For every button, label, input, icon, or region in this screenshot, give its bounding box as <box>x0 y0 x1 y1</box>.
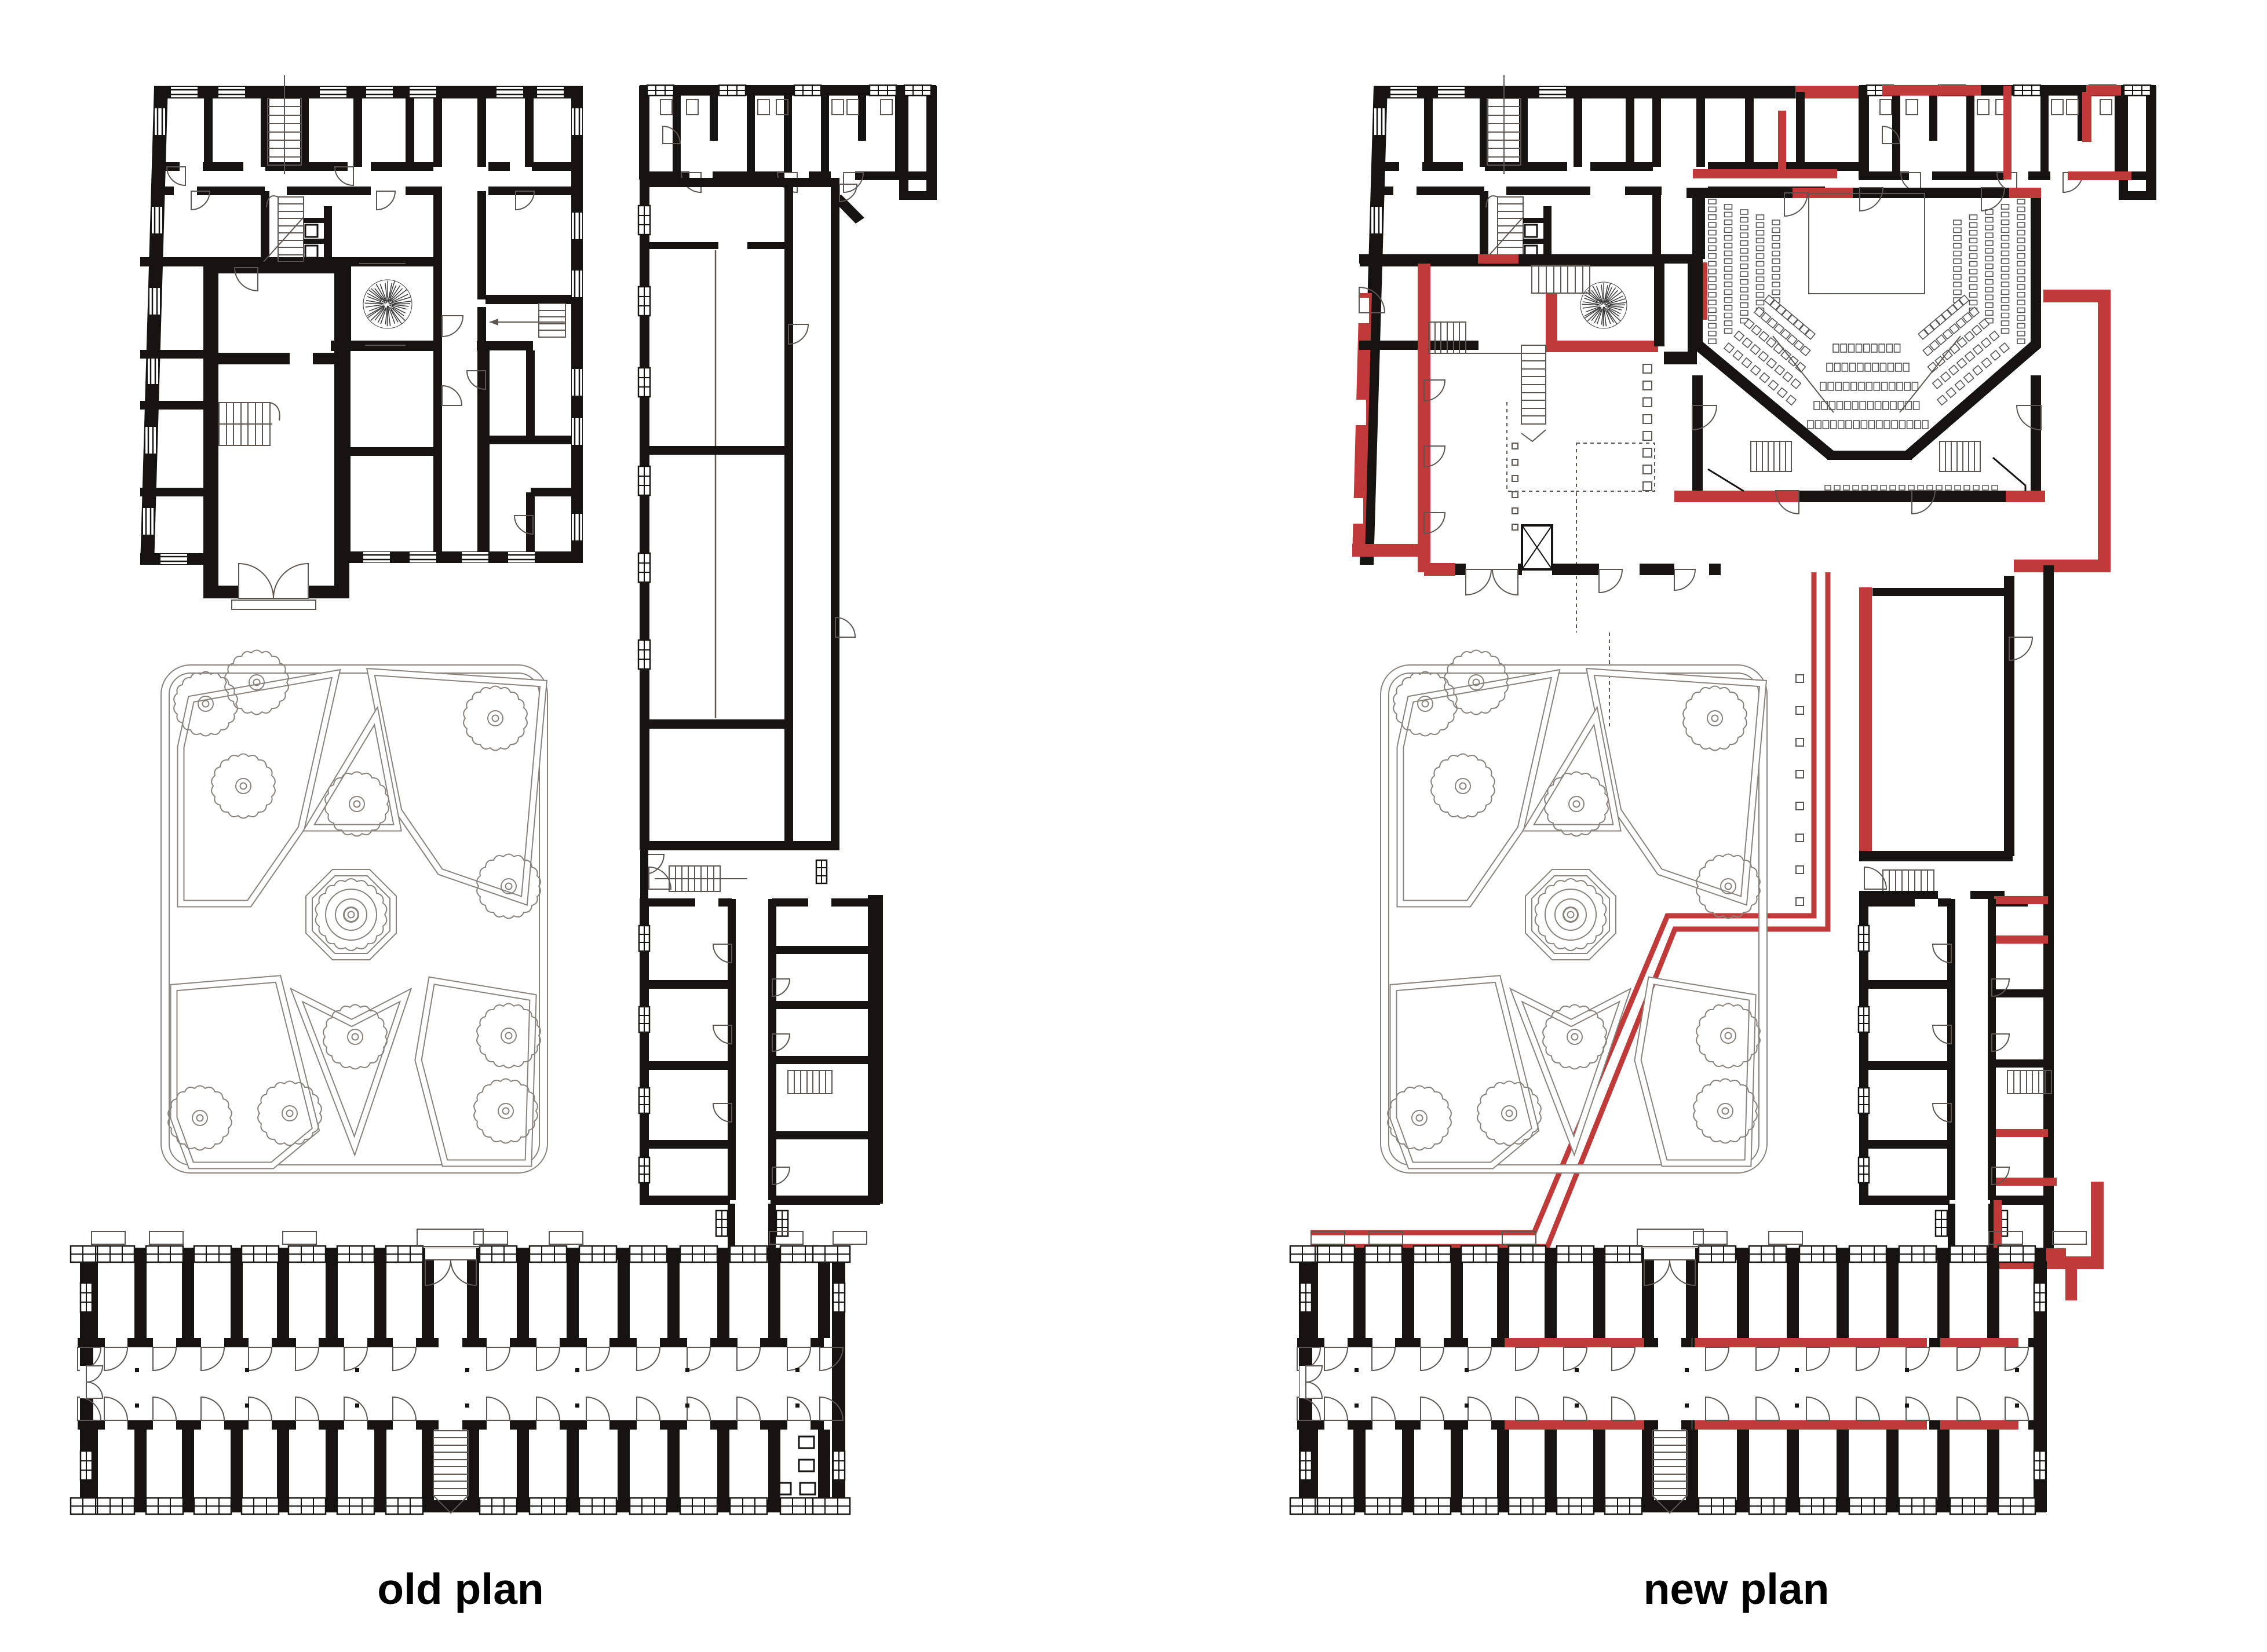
svg-text:old plan: old plan <box>377 1565 543 1613</box>
svg-text:new plan: new plan <box>1644 1565 1830 1613</box>
